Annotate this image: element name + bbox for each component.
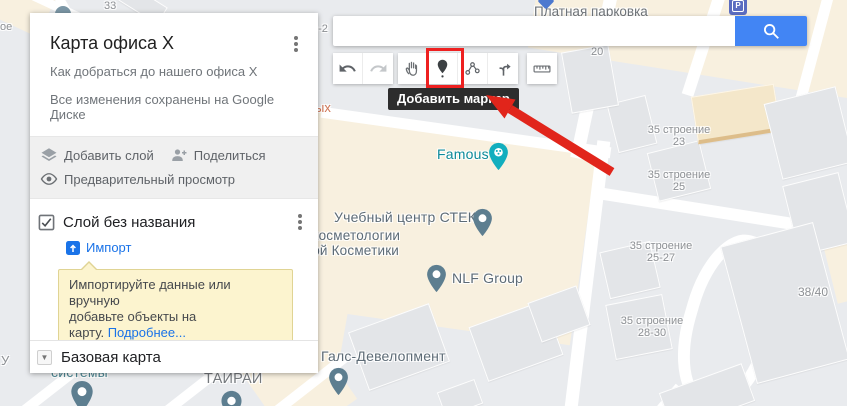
- undo-button[interactable]: [333, 53, 363, 84]
- poi-label-gals: Галс-Девелопмент: [321, 350, 446, 362]
- preview-button[interactable]: Предварительный просмотр: [40, 170, 235, 188]
- base-map-row[interactable]: ▼ Базовая карта: [30, 340, 318, 373]
- building-label: 38/40: [798, 286, 828, 298]
- layer-name[interactable]: Слой без названия: [63, 214, 292, 231]
- sistemy-marker-icon: [70, 380, 94, 406]
- tairai-marker-icon: [220, 390, 243, 406]
- search-input[interactable]: [333, 16, 735, 46]
- search-icon: [761, 21, 781, 41]
- pan-button[interactable]: [398, 53, 428, 84]
- share-button[interactable]: Поделиться: [170, 146, 266, 164]
- redo-button[interactable]: [363, 53, 393, 84]
- map-label: 33: [104, 0, 116, 12]
- eye-icon: [40, 170, 58, 188]
- map-options-menu-button[interactable]: [288, 33, 304, 55]
- base-map-label: Базовая карта: [61, 349, 161, 366]
- hand-icon: [403, 59, 422, 78]
- add-directions-button[interactable]: [488, 53, 518, 84]
- import-icon: [66, 241, 80, 255]
- layer-section: Слой без названия Импорт Импортируйте да…: [30, 199, 318, 350]
- pointer-arrow: [470, 85, 660, 195]
- layer-options-menu-button[interactable]: [292, 211, 308, 233]
- import-label: Импорт: [86, 240, 131, 255]
- page-title[interactable]: Карта офиса X: [50, 33, 288, 54]
- chevron-down-icon: ▼: [41, 353, 49, 362]
- base-map-expand-button[interactable]: ▼: [37, 350, 52, 365]
- layer-checkbox[interactable]: [38, 214, 55, 231]
- save-status: Все изменения сохранены на Google Диске: [50, 92, 304, 122]
- import-button[interactable]: Импорт: [66, 240, 308, 255]
- map-info-panel: Карта офиса X Как добраться до нашего оф…: [30, 13, 318, 373]
- building-label: 35 строение25-27: [625, 240, 697, 264]
- layers-icon: [40, 146, 58, 164]
- directions-icon: [494, 59, 513, 78]
- my-maps-window: 33 ое е-2 20 У а ых Платная парковка 35 …: [0, 0, 847, 406]
- learn-more-link[interactable]: Подробнее...: [108, 325, 186, 340]
- draw-line-icon: [463, 59, 482, 78]
- poi-label-stek: Учебный центр СТЕК: [334, 211, 476, 223]
- stek-marker-icon: [472, 208, 493, 237]
- paid-parking-icon: P: [729, 0, 747, 15]
- map-building: [764, 86, 847, 180]
- person-add-icon: [170, 146, 188, 164]
- marker-button-highlight: [426, 48, 464, 88]
- gals-marker-icon: [328, 367, 349, 396]
- panel-actions: Добавить слой Поделиться: [30, 136, 318, 199]
- map-label: У: [1, 355, 9, 367]
- redo-icon: [369, 59, 388, 78]
- add-layer-label: Добавить слой: [64, 148, 154, 163]
- preview-label: Предварительный просмотр: [64, 172, 235, 187]
- poi-label-tairai: ТАЙРАЙ: [204, 373, 262, 385]
- undo-redo-group: [333, 53, 393, 84]
- poi-label-nlf: NLF Group: [452, 272, 523, 284]
- nlf-marker-icon: [426, 264, 447, 293]
- building-label: 35 строение28-30: [616, 315, 688, 339]
- search-button[interactable]: [735, 16, 807, 46]
- map-building: [437, 379, 483, 406]
- measure-group: [527, 53, 557, 84]
- map-label: 20: [591, 46, 603, 58]
- import-hint-bubble: Импортируйте данные или вручную добавьте…: [58, 269, 293, 350]
- search-bar: [333, 16, 807, 46]
- map-label: ое: [0, 21, 12, 33]
- measure-button[interactable]: [527, 53, 557, 84]
- ruler-icon: [532, 59, 552, 79]
- undo-icon: [338, 59, 357, 78]
- map-description[interactable]: Как добраться до нашего офиса X: [50, 64, 304, 79]
- share-label: Поделиться: [194, 148, 266, 163]
- add-layer-button[interactable]: Добавить слой: [40, 146, 154, 164]
